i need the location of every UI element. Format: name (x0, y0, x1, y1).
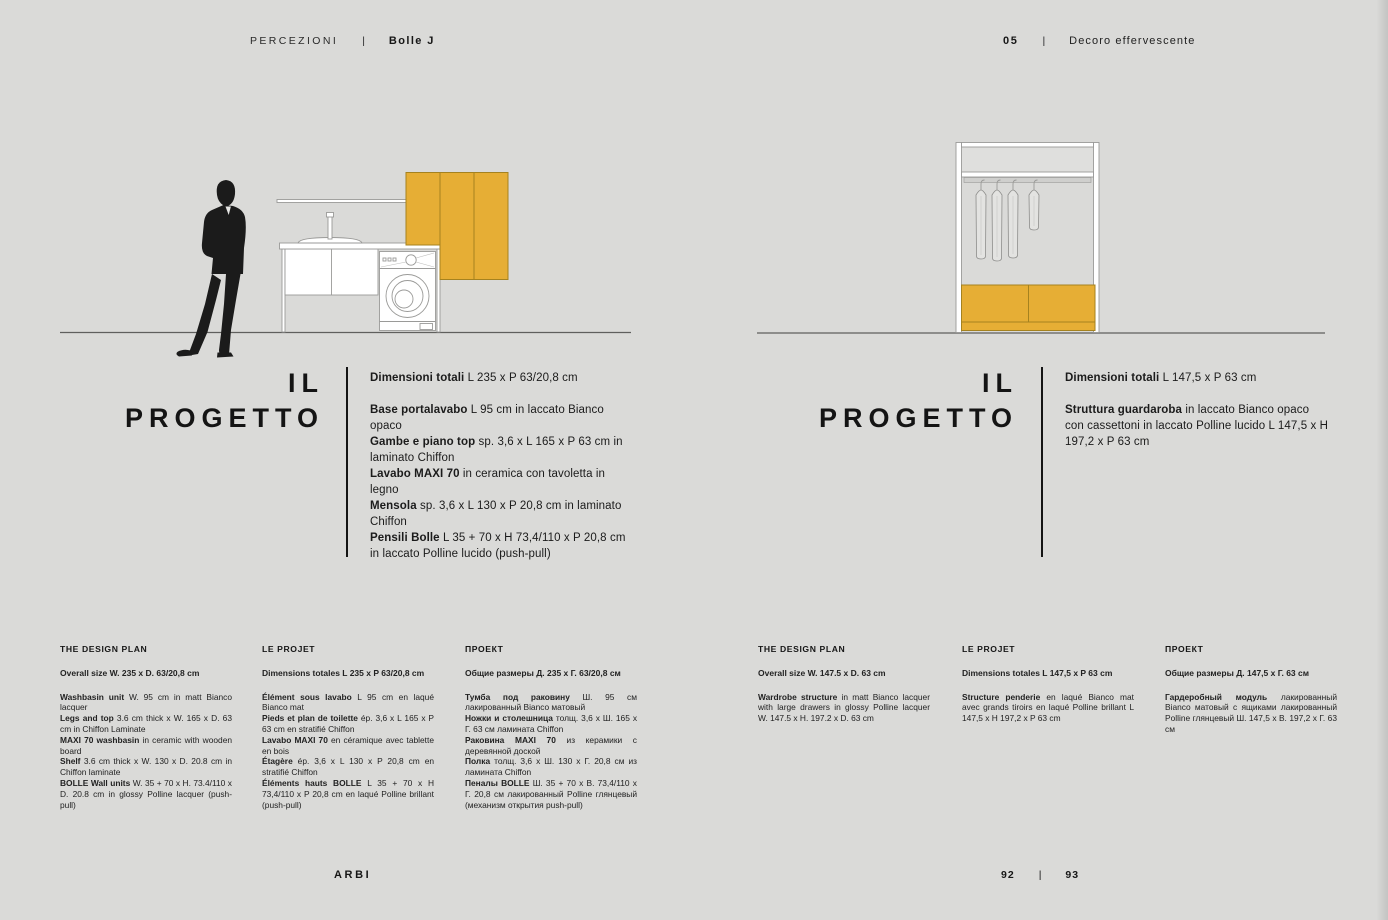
page-edge-shadow (1376, 0, 1388, 920)
page-separator: | (1039, 869, 1042, 881)
section-title-line1: IL (118, 366, 324, 401)
column-item: MAXI 70 washbasin in ceramic with wooden… (60, 735, 232, 757)
column-heading: ПРОЕКТ (1165, 644, 1337, 655)
spec-block-right: Dimensioni totali L 147,5 x P 63 cm Stru… (1065, 370, 1329, 450)
spec-item-label: Gambe e piano top (370, 436, 475, 448)
faucet-drawing (328, 216, 332, 239)
wardrobe-drawers-drawing (962, 285, 1096, 331)
wardrobe-post-left (956, 143, 962, 333)
wardrobe-hanging-rail (964, 178, 1091, 183)
column-item: BOLLE Wall units W. 35 + 70 x H. 73.4/11… (60, 778, 232, 810)
spec-item-list: Base portalavabo L 95 cm in laccato Bian… (370, 402, 630, 562)
column-heading: THE DESIGN PLAN (60, 644, 232, 655)
page-number-right: 93 (1065, 869, 1079, 881)
column-design-plan-left: THE DESIGN PLAN Overall size W. 235 x D.… (60, 644, 232, 810)
spec-item-list: Struttura guardaroba in laccato Bianco o… (1065, 402, 1329, 450)
column-item-label: Legs and top (60, 713, 114, 723)
shelf-drawing (277, 200, 407, 203)
column-item: Éléments hauts BOLLE L 35 + 70 x H 73,4/… (262, 778, 434, 810)
section-title-right: IL PROGETTO (812, 366, 1018, 436)
column-item-label: MAXI 70 washbasin (60, 735, 139, 745)
column-item-text: 3.6 cm thick x W. 130 x D. 20.8 cm in Ch… (60, 756, 232, 777)
column-item-label: Étagère (262, 756, 293, 766)
column-item-label: Ножки и столешница (465, 713, 553, 723)
washing-machine-drawing (380, 252, 436, 331)
column-item: Étagère ép. 3,6 x L 130 x P 20,8 cm en s… (262, 756, 434, 778)
column-item: Wardrobe structure in matt Bianco lacque… (758, 692, 930, 724)
section-title-line1: IL (812, 366, 1018, 401)
column-le-projet-right: LE PROJET Dimensions totales L 147,5 x P… (962, 644, 1134, 724)
column-item: Lavabo MAXI 70 en céramique avec tablett… (262, 735, 434, 757)
column-item-label: Pieds et plan de toilette (262, 713, 358, 723)
section-title-line2: PROGETTO (118, 401, 324, 436)
spec-total: Dimensioni totali L 235 x P 63/20,8 cm (370, 370, 630, 386)
column-item-text: толщ. 3,6 x Ш. 130 x Г. 20,8 см из ламин… (465, 756, 637, 777)
column-item-label: Тумба под раковину (465, 692, 570, 702)
column-item-label: Гардеробный модуль (1165, 692, 1267, 702)
column-overall-size: Общие размеры Д. 235 x Г. 63/20,8 см (465, 668, 637, 679)
column-item-label: Élément sous lavabo (262, 692, 352, 702)
column-item-label: Washbasin unit (60, 692, 124, 702)
spec-item-label: Struttura guardaroba (1065, 404, 1182, 416)
spec-total-label: Dimensioni totali (370, 372, 464, 384)
column-item: Ножки и столешница толщ. 3,6 x Ш. 165 x … (465, 713, 637, 735)
column-item-label: Wardrobe structure (758, 692, 837, 702)
column-item-list: Élément sous lavabo L 95 cm en laqué Bia… (262, 692, 434, 811)
column-overall-size: Overall size W. 147.5 x D. 63 cm (758, 668, 930, 679)
wall-units-drawing (406, 173, 508, 280)
washbasin-unit-drawing (280, 213, 444, 296)
column-overall-size: Dimensions totales L 235 x P 63/20,8 cm (262, 668, 434, 679)
hanging-garments-drawing (976, 180, 1039, 261)
column-item: Пеналы BOLLE Ш. 35 + 70 x В. 73,4/110 x … (465, 778, 637, 810)
column-item-list: Wardrobe structure in matt Bianco lacque… (758, 692, 930, 724)
column-heading: LE PROJET (962, 644, 1134, 655)
brand-logo: ARBI (334, 869, 371, 881)
column-item: Pieds et plan de toilette ép. 3,6 x L 16… (262, 713, 434, 735)
bathroom-elevation-drawing (60, 173, 631, 358)
spec-item-label: Mensola (370, 500, 417, 512)
spec-total-text: L 147,5 x P 63 cm (1163, 372, 1257, 384)
column-item-list: Тумба под раковину Ш. 95 см лакированный… (465, 692, 637, 811)
spec-item-label: Lavabo MAXI 70 (370, 468, 460, 480)
column-item: Полка толщ. 3,6 x Ш. 130 x Г. 20,8 см из… (465, 756, 637, 778)
header-right: 05 | Decoro effervescente (1003, 35, 1196, 47)
column-item-label: Shelf (60, 756, 80, 766)
page-number-left: 92 (1001, 869, 1015, 881)
column-item: Тумба под раковину Ш. 95 см лакированный… (465, 692, 637, 714)
spec-total-text: L 235 x P 63/20,8 cm (468, 372, 578, 384)
section-divider-right (1041, 367, 1043, 557)
spec-item: Mensola sp. 3,6 x L 130 x P 20,8 cm in l… (370, 498, 630, 530)
page-numbers: 92 | 93 (1001, 869, 1079, 881)
column-item-label: Éléments hauts BOLLE (262, 778, 361, 788)
column-item-label: Пеналы BOLLE (465, 778, 529, 788)
model-name: Bolle J (389, 35, 435, 47)
wardrobe-top-bar (962, 143, 1094, 148)
spec-item: Gambe e piano top sp. 3,6 x L 165 x P 63… (370, 434, 630, 466)
person-illustration (176, 180, 245, 358)
section-divider-left (346, 367, 348, 557)
wardrobe-back-panel (962, 147, 1093, 172)
spec-total: Dimensioni totali L 147,5 x P 63 cm (1065, 370, 1329, 386)
wardrobe-shelf (962, 172, 1094, 177)
column-item-list: Гардеробный модуль лакированный Bianco м… (1165, 692, 1337, 735)
spec-item: Struttura guardaroba in laccato Bianco o… (1065, 402, 1329, 450)
column-item: Shelf 3.6 cm thick x W. 130 x D. 20.8 cm… (60, 756, 232, 778)
wardrobe-elevation-drawing (757, 143, 1325, 334)
catalog-spread: PERCEZIONI | Bolle J 05 | Decoro efferve… (0, 0, 1388, 920)
column-item-label: Lavabo MAXI 70 (262, 735, 328, 745)
column-item-label: Полка (465, 756, 490, 766)
column-heading: LE PROJET (262, 644, 434, 655)
column-proekt-right: ПРОЕКТ Общие размеры Д. 147,5 x Г. 63 см… (1165, 644, 1337, 735)
wardrobe-post-right (1094, 143, 1100, 333)
chapter-number: 05 (1003, 35, 1018, 47)
spec-block-left: Dimensioni totali L 235 x P 63/20,8 cm B… (370, 370, 630, 562)
column-heading: ПРОЕКТ (465, 644, 637, 655)
column-heading: THE DESIGN PLAN (758, 644, 930, 655)
spec-item: Pensili Bolle L 35 + 70 x H 73,4/110 x P… (370, 530, 630, 562)
vanity-leg-left (282, 249, 285, 332)
column-overall-size: Dimensions totales L 147,5 x P 63 cm (962, 668, 1134, 679)
spec-total-label: Dimensioni totali (1065, 372, 1159, 384)
column-proekt-left: ПРОЕКТ Общие размеры Д. 235 x Г. 63/20,8… (465, 644, 637, 810)
column-overall-size: Overall size W. 235 x D. 63/20,8 cm (60, 668, 232, 679)
column-item-label: BOLLE Wall units (60, 778, 130, 788)
section-title-line2: PROGETTO (812, 401, 1018, 436)
section-title-left: IL PROGETTO (118, 366, 324, 436)
vanity-leg-right (437, 249, 440, 332)
column-item: Гардеробный модуль лакированный Bianco м… (1165, 692, 1337, 735)
column-item-list: Washbasin unit W. 95 cm in matt Bianco l… (60, 692, 232, 811)
column-item: Раковина MAXI 70 из керамики с деревянно… (465, 735, 637, 757)
collection-name: PERCEZIONI (250, 35, 338, 47)
column-item-label: Structure penderie (962, 692, 1040, 702)
header-separator: | (362, 35, 365, 47)
column-item: Structure penderie en laqué Bianco mat a… (962, 692, 1134, 724)
spec-item: Lavabo MAXI 70 in ceramica con tavoletta… (370, 466, 630, 498)
header-separator: | (1042, 35, 1045, 47)
header-left: PERCEZIONI | Bolle J (250, 35, 435, 47)
column-item-list: Structure penderie en laqué Bianco mat a… (962, 692, 1134, 724)
column-le-projet-left: LE PROJET Dimensions totales L 235 x P 6… (262, 644, 434, 810)
column-design-plan-right: THE DESIGN PLAN Overall size W. 147.5 x … (758, 644, 930, 724)
column-item-label: Раковина MAXI 70 (465, 735, 556, 745)
column-item: Washbasin unit W. 95 cm in matt Bianco l… (60, 692, 232, 714)
chapter-title: Decoro effervescente (1069, 35, 1195, 47)
spec-item: Base portalavabo L 95 cm in laccato Bian… (370, 402, 630, 434)
column-overall-size: Общие размеры Д. 147,5 x Г. 63 см (1165, 668, 1337, 679)
washbasin-drawing (298, 238, 362, 244)
column-item: Legs and top 3.6 cm thick x W. 165 x D. … (60, 713, 232, 735)
spec-item-label: Base portalavabo (370, 404, 467, 416)
spec-item-label: Pensili Bolle (370, 532, 440, 544)
column-item: Élément sous lavabo L 95 cm en laqué Bia… (262, 692, 434, 714)
